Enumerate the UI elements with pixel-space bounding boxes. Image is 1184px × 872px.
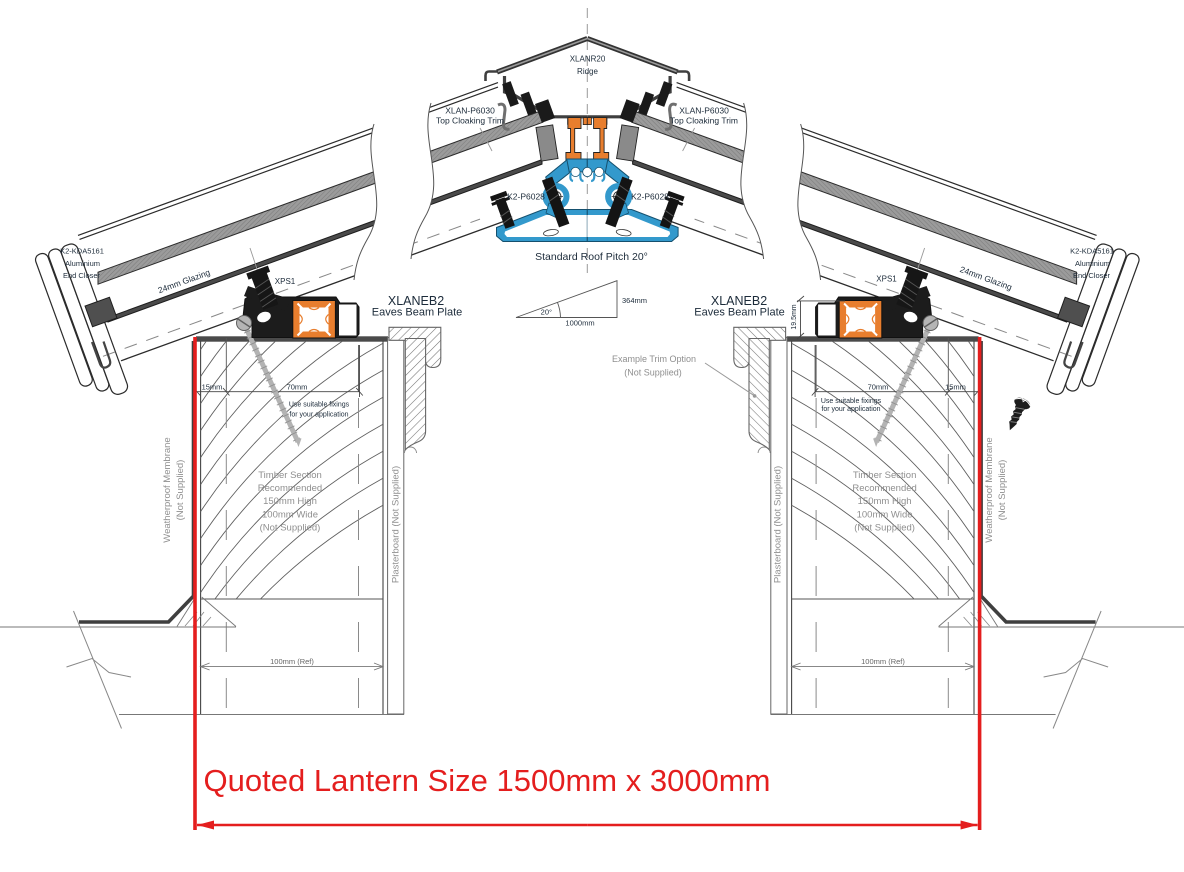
svg-text:100mm Wide: 100mm Wide [857,509,913,520]
svg-text:Eaves Beam Plate: Eaves Beam Plate [372,306,463,318]
svg-text:Timber Section: Timber Section [853,470,917,481]
svg-text:100mm (Ref): 100mm (Ref) [861,657,905,666]
svg-text:Top Cloaking Trim: Top Cloaking Trim [670,116,738,126]
svg-text:100mm Wide: 100mm Wide [262,509,318,520]
svg-text:(Not Supplied): (Not Supplied) [997,460,1008,521]
svg-text:for your application: for your application [821,406,880,413]
svg-text:(Not Supplied): (Not Supplied) [624,368,682,378]
svg-text:70mm: 70mm [287,383,308,392]
svg-text:End Closer: End Closer [63,271,101,280]
svg-text:100mm (Ref): 100mm (Ref) [270,657,314,666]
svg-text:Eaves Beam Plate: Eaves Beam Plate [694,306,785,318]
svg-text:(Not Supplied): (Not Supplied) [260,522,321,533]
svg-text:XPS1: XPS1 [275,277,296,286]
svg-text:70mm: 70mm [868,383,889,392]
svg-text:15mm: 15mm [945,383,966,392]
svg-text:Example Trim Option: Example Trim Option [612,354,696,364]
svg-text:XLANR20: XLANR20 [570,55,606,64]
svg-text:1000mm: 1000mm [565,319,594,328]
svg-text:Recommended: Recommended [258,483,322,494]
svg-text:K2-KDA5161: K2-KDA5161 [1070,247,1114,256]
svg-text:K2-KDA5161: K2-KDA5161 [60,247,104,256]
svg-text:Standard Roof Pitch 20°: Standard Roof Pitch 20° [535,251,648,263]
svg-text:15mm: 15mm [202,383,223,392]
svg-text:Plasterboard (Not Supplied): Plasterboard (Not Supplied) [773,466,784,583]
svg-text:(Not Supplied): (Not Supplied) [175,460,186,521]
svg-text:Recommended: Recommended [852,483,916,494]
svg-text:Ridge: Ridge [577,67,598,76]
svg-text:20°: 20° [541,308,552,317]
svg-text:K2-P6028: K2-P6028 [631,192,669,202]
svg-text:150mm High: 150mm High [263,496,317,507]
svg-text:Use suitable fixings: Use suitable fixings [289,402,350,409]
svg-text:Quoted Lantern Size 1500mm x 3: Quoted Lantern Size 1500mm x 3000mm [204,763,771,798]
svg-text:Use suitable fixings: Use suitable fixings [821,398,882,405]
svg-text:for your application: for your application [289,412,348,419]
svg-text:XPS1: XPS1 [876,275,897,284]
svg-text:364mm: 364mm [622,296,647,305]
svg-text:K2-P6028: K2-P6028 [507,192,545,202]
svg-text:XLAN-P6030: XLAN-P6030 [679,106,729,116]
svg-text:XLAN-P6030: XLAN-P6030 [445,106,495,116]
svg-text:Weatherproof Membrane: Weatherproof Membrane [984,437,995,542]
svg-text:150mm High: 150mm High [858,496,912,507]
svg-text:(Not Supplied): (Not Supplied) [854,522,915,533]
svg-text:Timber Section: Timber Section [258,470,322,481]
svg-text:Aluminium: Aluminium [1075,259,1110,268]
svg-text:Top Cloaking Trim: Top Cloaking Trim [436,116,504,126]
svg-text:Plasterboard (Not Supplied): Plasterboard (Not Supplied) [391,466,402,583]
svg-text:19.5mm: 19.5mm [791,304,798,329]
svg-text:Aluminium: Aluminium [65,259,100,268]
svg-text:Weatherproof Membrane: Weatherproof Membrane [162,437,173,542]
svg-text:End Closer: End Closer [1073,271,1111,280]
